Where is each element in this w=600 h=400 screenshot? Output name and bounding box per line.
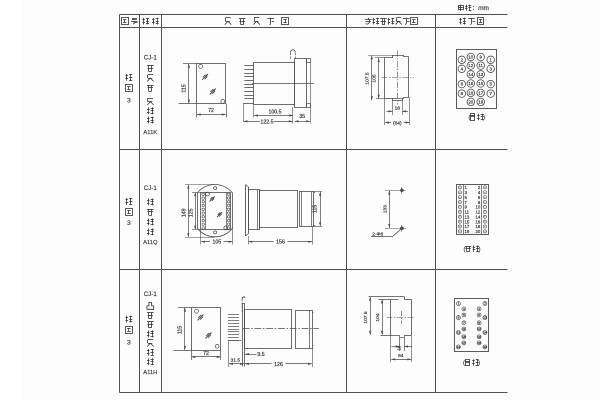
svg-text:CJ-1: CJ-1 bbox=[144, 185, 158, 192]
svg-text:16: 16 bbox=[477, 335, 481, 339]
svg-text:16: 16 bbox=[468, 81, 473, 86]
svg-text:A11Q: A11Q bbox=[143, 240, 158, 246]
svg-text:133: 133 bbox=[382, 205, 388, 213]
svg-text:64: 64 bbox=[398, 353, 404, 359]
svg-text:126: 126 bbox=[274, 362, 283, 368]
svg-text:CJ-1: CJ-1 bbox=[144, 291, 158, 298]
svg-text:12: 12 bbox=[477, 327, 481, 331]
svg-text:17: 17 bbox=[462, 341, 466, 345]
svg-text:): ) bbox=[478, 360, 480, 367]
svg-text:mm: mm bbox=[478, 5, 489, 12]
svg-text:19: 19 bbox=[465, 229, 470, 234]
svg-text:2-Φ6: 2-Φ6 bbox=[372, 231, 383, 237]
svg-text:107.5: 107.5 bbox=[363, 311, 369, 324]
svg-text:CJ-1: CJ-1 bbox=[144, 55, 158, 62]
svg-text:13: 13 bbox=[457, 331, 461, 335]
svg-text:A11H: A11H bbox=[143, 370, 157, 376]
svg-text:19: 19 bbox=[478, 100, 483, 105]
svg-text:72: 72 bbox=[203, 351, 209, 357]
svg-text:18: 18 bbox=[468, 91, 473, 96]
svg-text:17: 17 bbox=[478, 91, 483, 96]
svg-text:149: 149 bbox=[181, 208, 187, 217]
svg-text:35: 35 bbox=[299, 114, 305, 120]
svg-text:10: 10 bbox=[468, 55, 473, 60]
svg-text:115: 115 bbox=[178, 326, 184, 334]
svg-text:105: 105 bbox=[372, 74, 378, 82]
svg-text:3: 3 bbox=[127, 98, 131, 105]
svg-text:104: 104 bbox=[375, 313, 381, 321]
svg-text:11: 11 bbox=[478, 63, 483, 68]
svg-text:15: 15 bbox=[462, 335, 466, 339]
svg-text:20: 20 bbox=[476, 229, 481, 234]
svg-text:20: 20 bbox=[468, 100, 473, 105]
svg-text:A11K: A11K bbox=[143, 130, 157, 136]
svg-text:11: 11 bbox=[462, 327, 465, 331]
svg-text:100.5: 100.5 bbox=[269, 110, 282, 116]
svg-text:72: 72 bbox=[208, 108, 214, 114]
svg-text:105: 105 bbox=[212, 240, 221, 246]
svg-text:15: 15 bbox=[478, 81, 483, 86]
svg-text:): ) bbox=[478, 246, 480, 253]
svg-text:): ) bbox=[483, 114, 485, 121]
svg-text:13: 13 bbox=[478, 72, 483, 77]
svg-text:10: 10 bbox=[483, 316, 487, 320]
svg-text:14: 14 bbox=[483, 331, 487, 335]
svg-text:18: 18 bbox=[477, 341, 481, 345]
svg-text:3: 3 bbox=[127, 220, 131, 227]
svg-text:16: 16 bbox=[395, 105, 401, 111]
svg-text:19: 19 bbox=[457, 345, 461, 349]
svg-text:9.5: 9.5 bbox=[257, 352, 264, 358]
svg-text:31.5: 31.5 bbox=[231, 358, 241, 364]
svg-text:115: 115 bbox=[313, 205, 319, 213]
svg-text:20: 20 bbox=[483, 345, 487, 349]
svg-text:14: 14 bbox=[468, 72, 473, 77]
svg-text:115: 115 bbox=[182, 84, 188, 92]
svg-text:12: 12 bbox=[468, 63, 473, 68]
svg-text:(64): (64) bbox=[393, 120, 402, 126]
svg-text:107.5: 107.5 bbox=[365, 72, 371, 85]
svg-text:156: 156 bbox=[276, 240, 285, 246]
svg-text:3: 3 bbox=[127, 340, 131, 347]
svg-text:125: 125 bbox=[189, 208, 195, 217]
svg-text:16: 16 bbox=[397, 345, 402, 350]
svg-text:122.5: 122.5 bbox=[261, 119, 274, 125]
